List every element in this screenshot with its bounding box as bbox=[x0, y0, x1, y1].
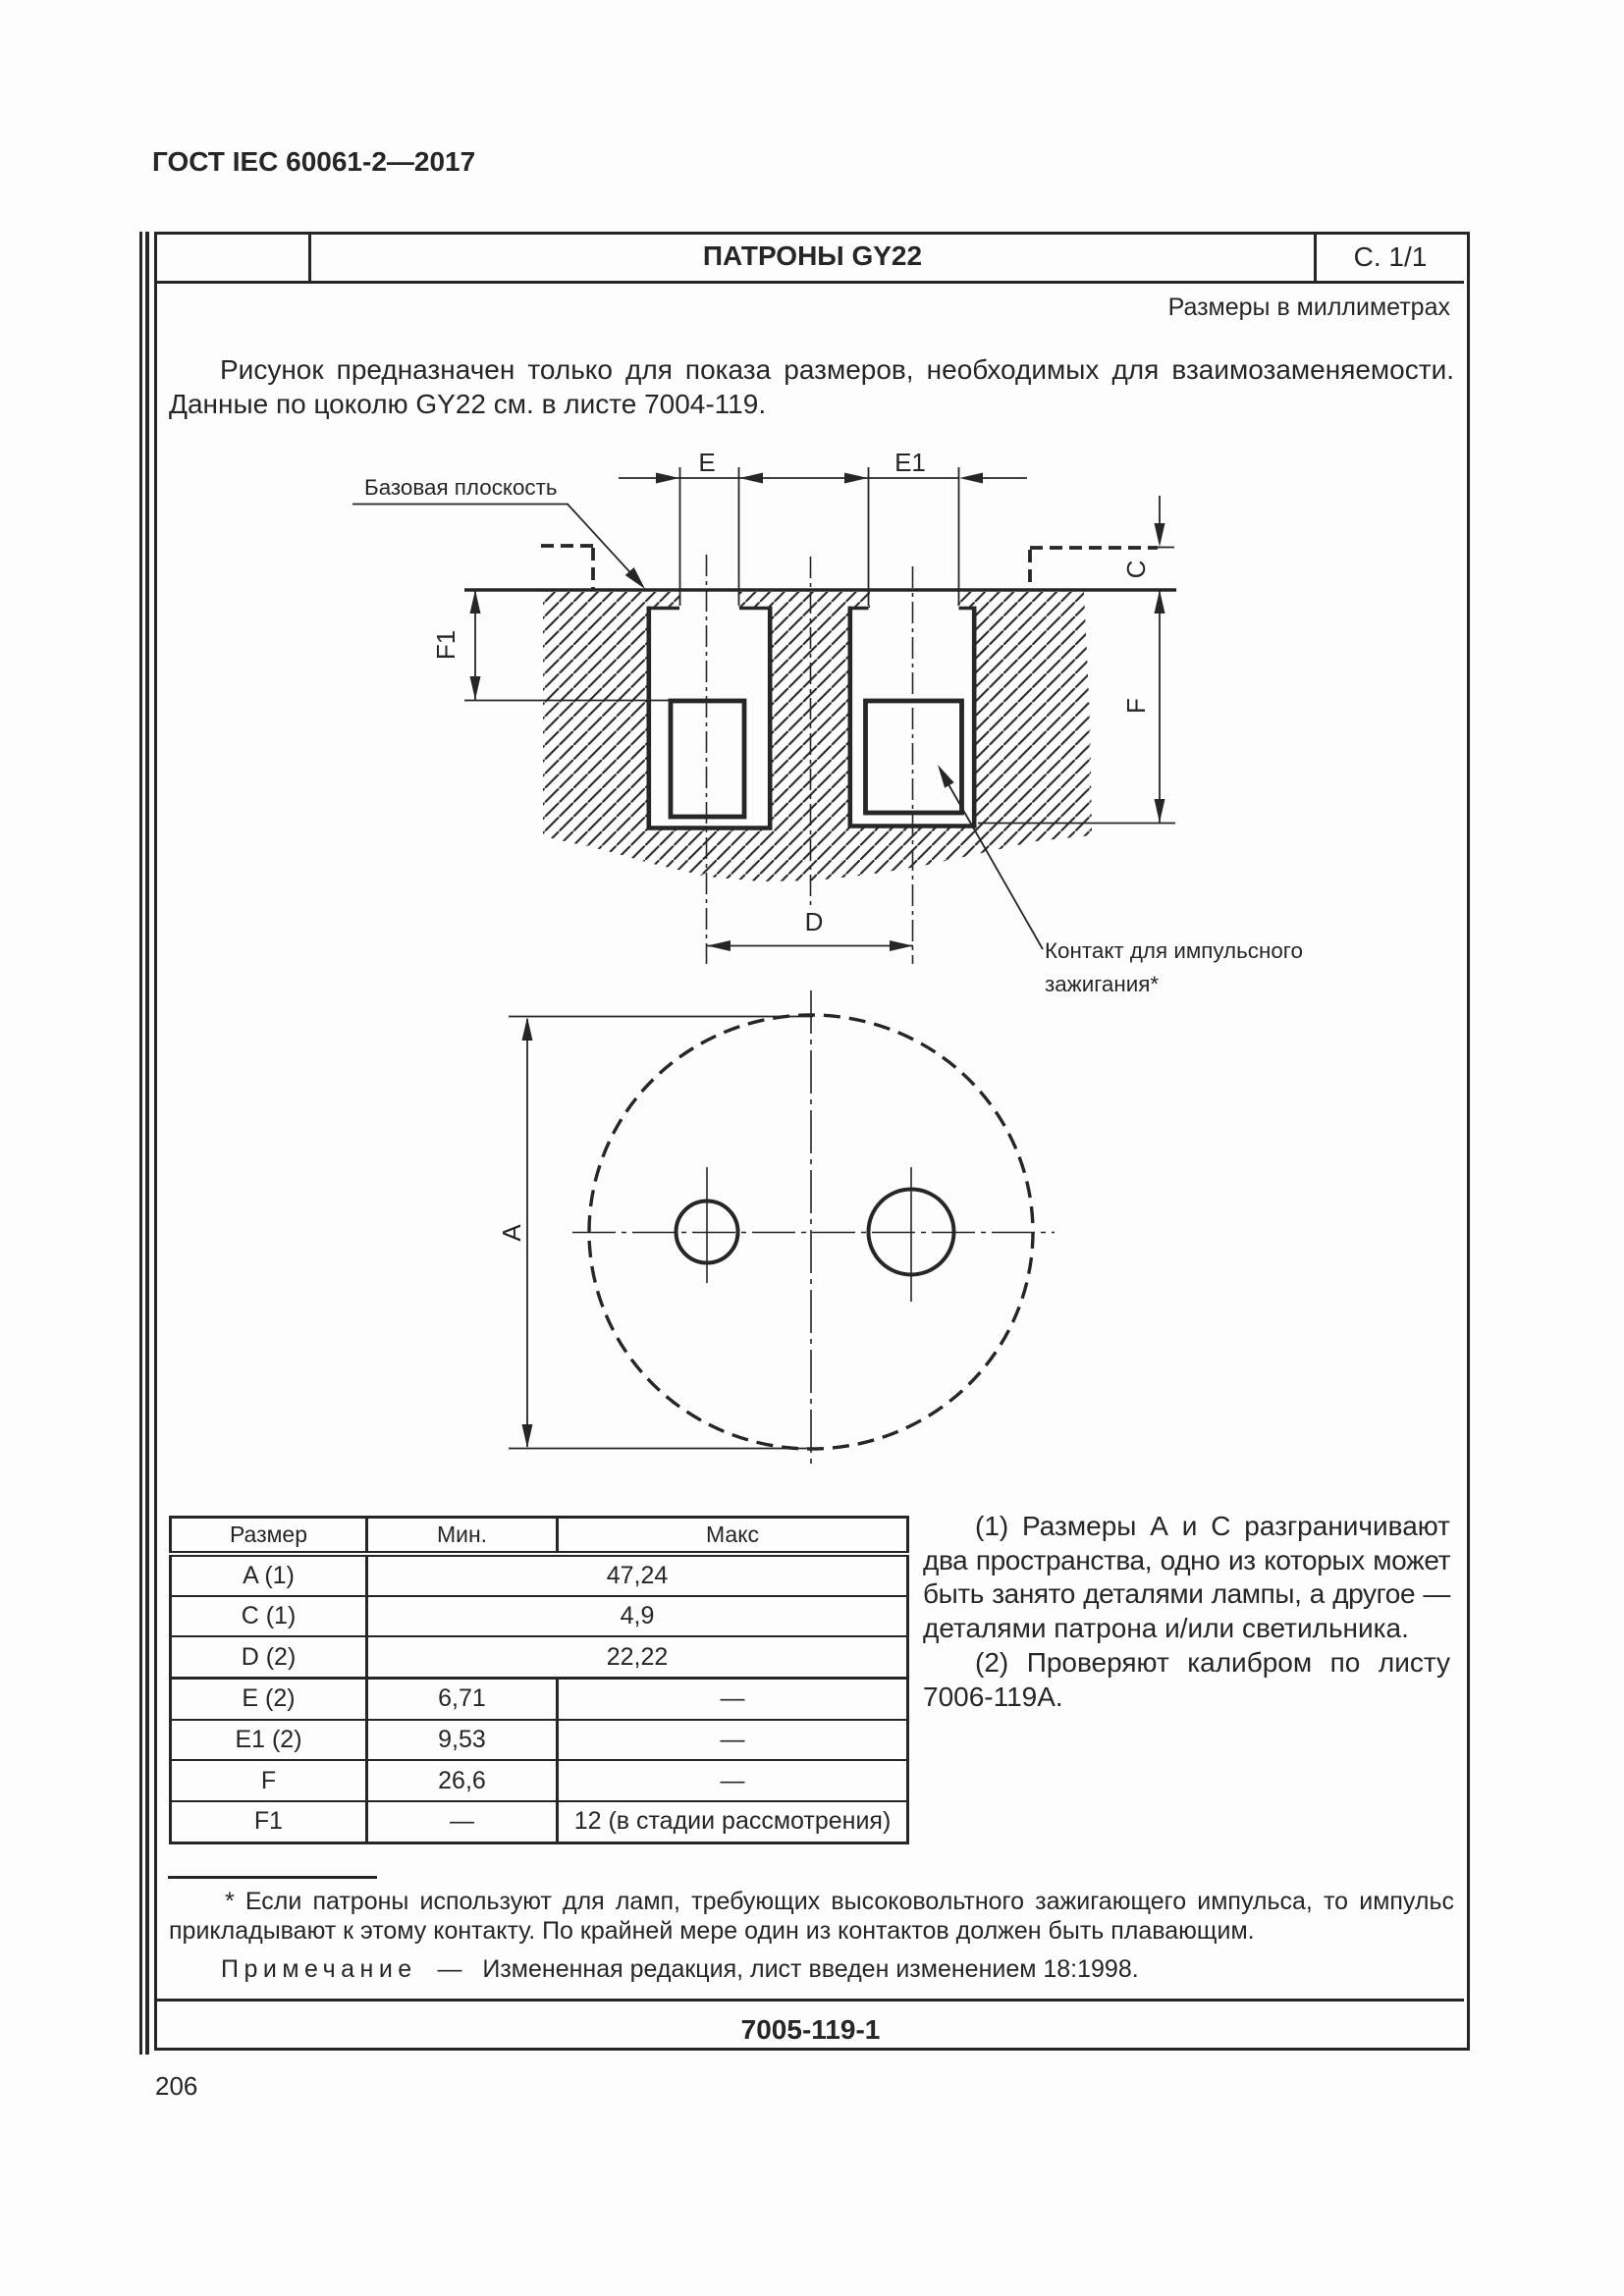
svg-text:E: E bbox=[698, 448, 715, 477]
svg-text:Контакт для импульсного: Контакт для импульсного bbox=[1045, 938, 1303, 963]
svg-text:Базовая плоскость: Базовая плоскость bbox=[364, 475, 558, 500]
svg-text:F1: F1 bbox=[431, 630, 460, 660]
svg-text:C: C bbox=[1121, 561, 1151, 579]
svg-text:зажигания*: зажигания* bbox=[1045, 972, 1159, 996]
svg-text:A: A bbox=[497, 1224, 526, 1242]
svg-text:F: F bbox=[1121, 698, 1151, 714]
svg-text:D: D bbox=[805, 907, 824, 936]
svg-text:E1: E1 bbox=[894, 448, 926, 477]
